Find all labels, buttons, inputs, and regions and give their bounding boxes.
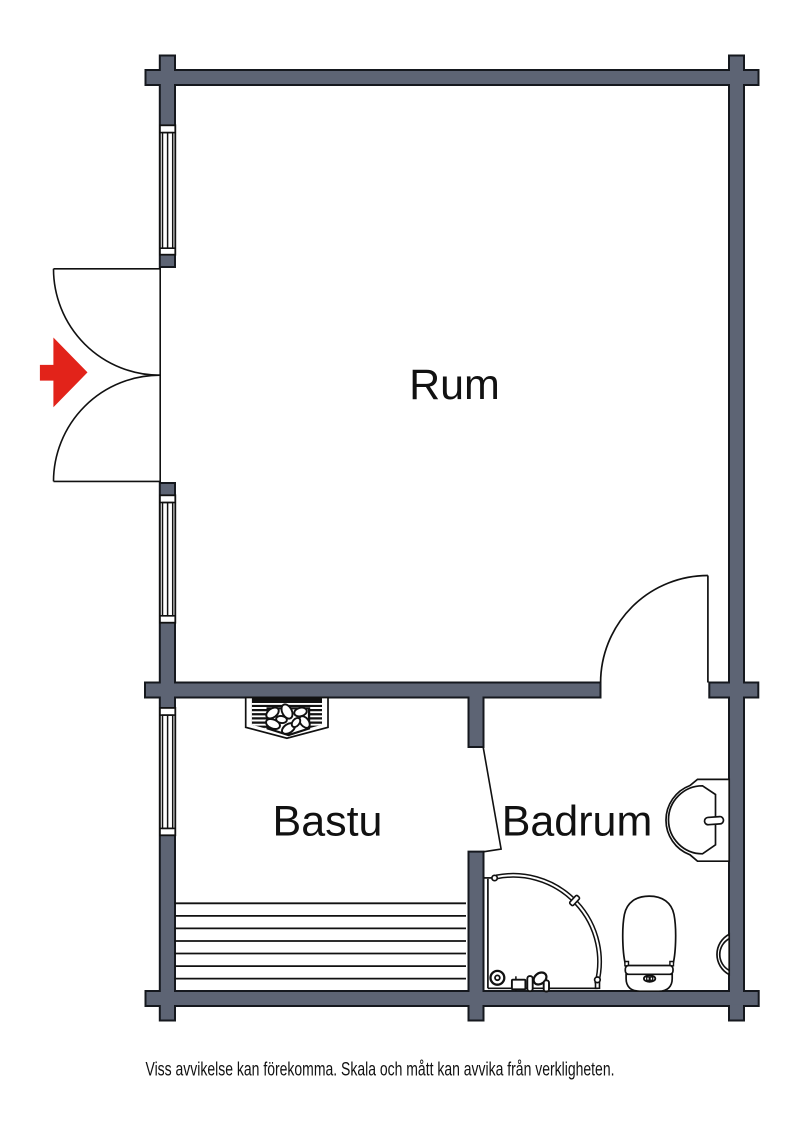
svg-text:Rum: Rum [409,361,500,409]
svg-text:Bastu: Bastu [273,798,383,846]
svg-text:Badrum: Badrum [502,798,653,846]
svg-text:Viss avvikelse kan förekomma.: Viss avvikelse kan förekomma. Skala och … [146,1059,615,1081]
